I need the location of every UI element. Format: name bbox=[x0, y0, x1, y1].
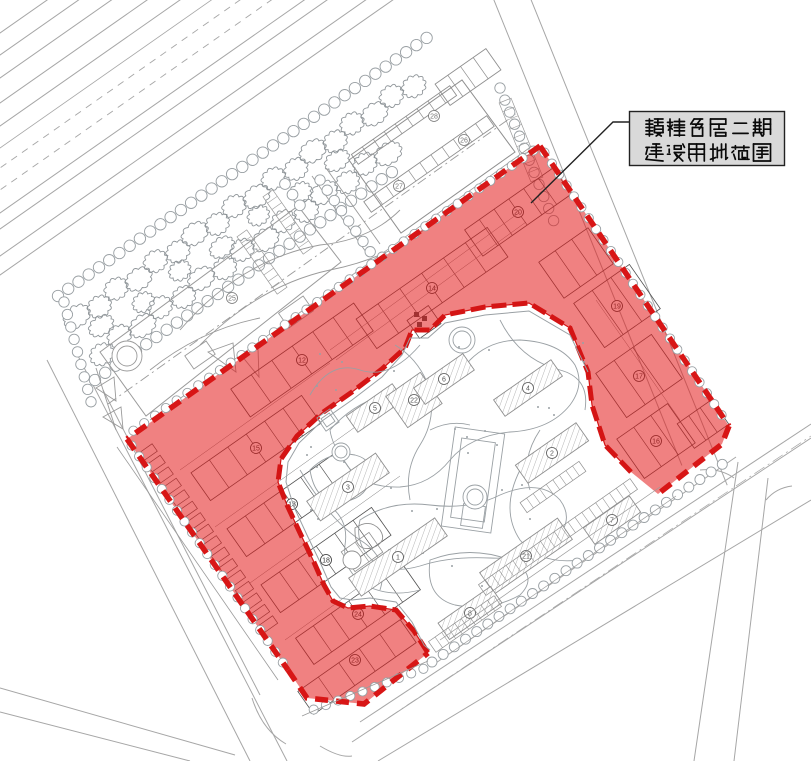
svg-text:5: 5 bbox=[373, 405, 377, 412]
svg-text:3: 3 bbox=[346, 484, 350, 491]
svg-text:21: 21 bbox=[522, 554, 530, 561]
svg-text:25: 25 bbox=[228, 295, 236, 302]
svg-text:1: 1 bbox=[396, 555, 400, 562]
svg-text:26: 26 bbox=[460, 137, 468, 144]
svg-text:6: 6 bbox=[442, 376, 446, 383]
svg-text:27: 27 bbox=[395, 183, 403, 190]
svg-text:28: 28 bbox=[430, 114, 438, 121]
svg-text:22: 22 bbox=[410, 397, 418, 404]
svg-text:18: 18 bbox=[322, 558, 330, 565]
svg-text:2: 2 bbox=[550, 450, 554, 457]
svg-text:4: 4 bbox=[526, 385, 530, 392]
